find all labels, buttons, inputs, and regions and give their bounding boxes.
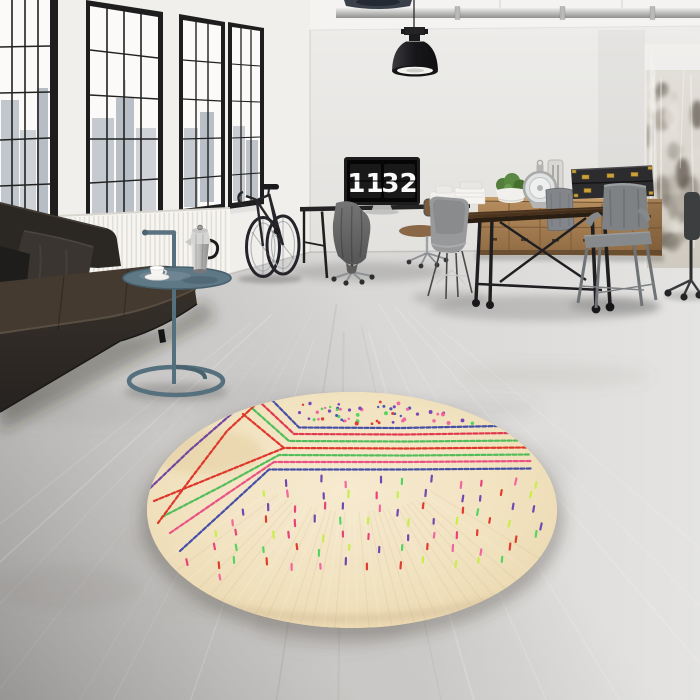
round-rug	[146, 392, 557, 628]
tolix-backrest	[602, 185, 649, 231]
window-bay	[228, 22, 264, 209]
window-bay	[0, 0, 58, 232]
flip-clock-hours: 11	[347, 169, 383, 199]
window-bay	[86, 0, 163, 222]
scene-canvas: 11 32	[0, 0, 700, 700]
loft-photo: 11 32	[0, 0, 700, 700]
window-bay	[179, 14, 225, 216]
flip-clock-minutes: 32	[381, 169, 417, 199]
